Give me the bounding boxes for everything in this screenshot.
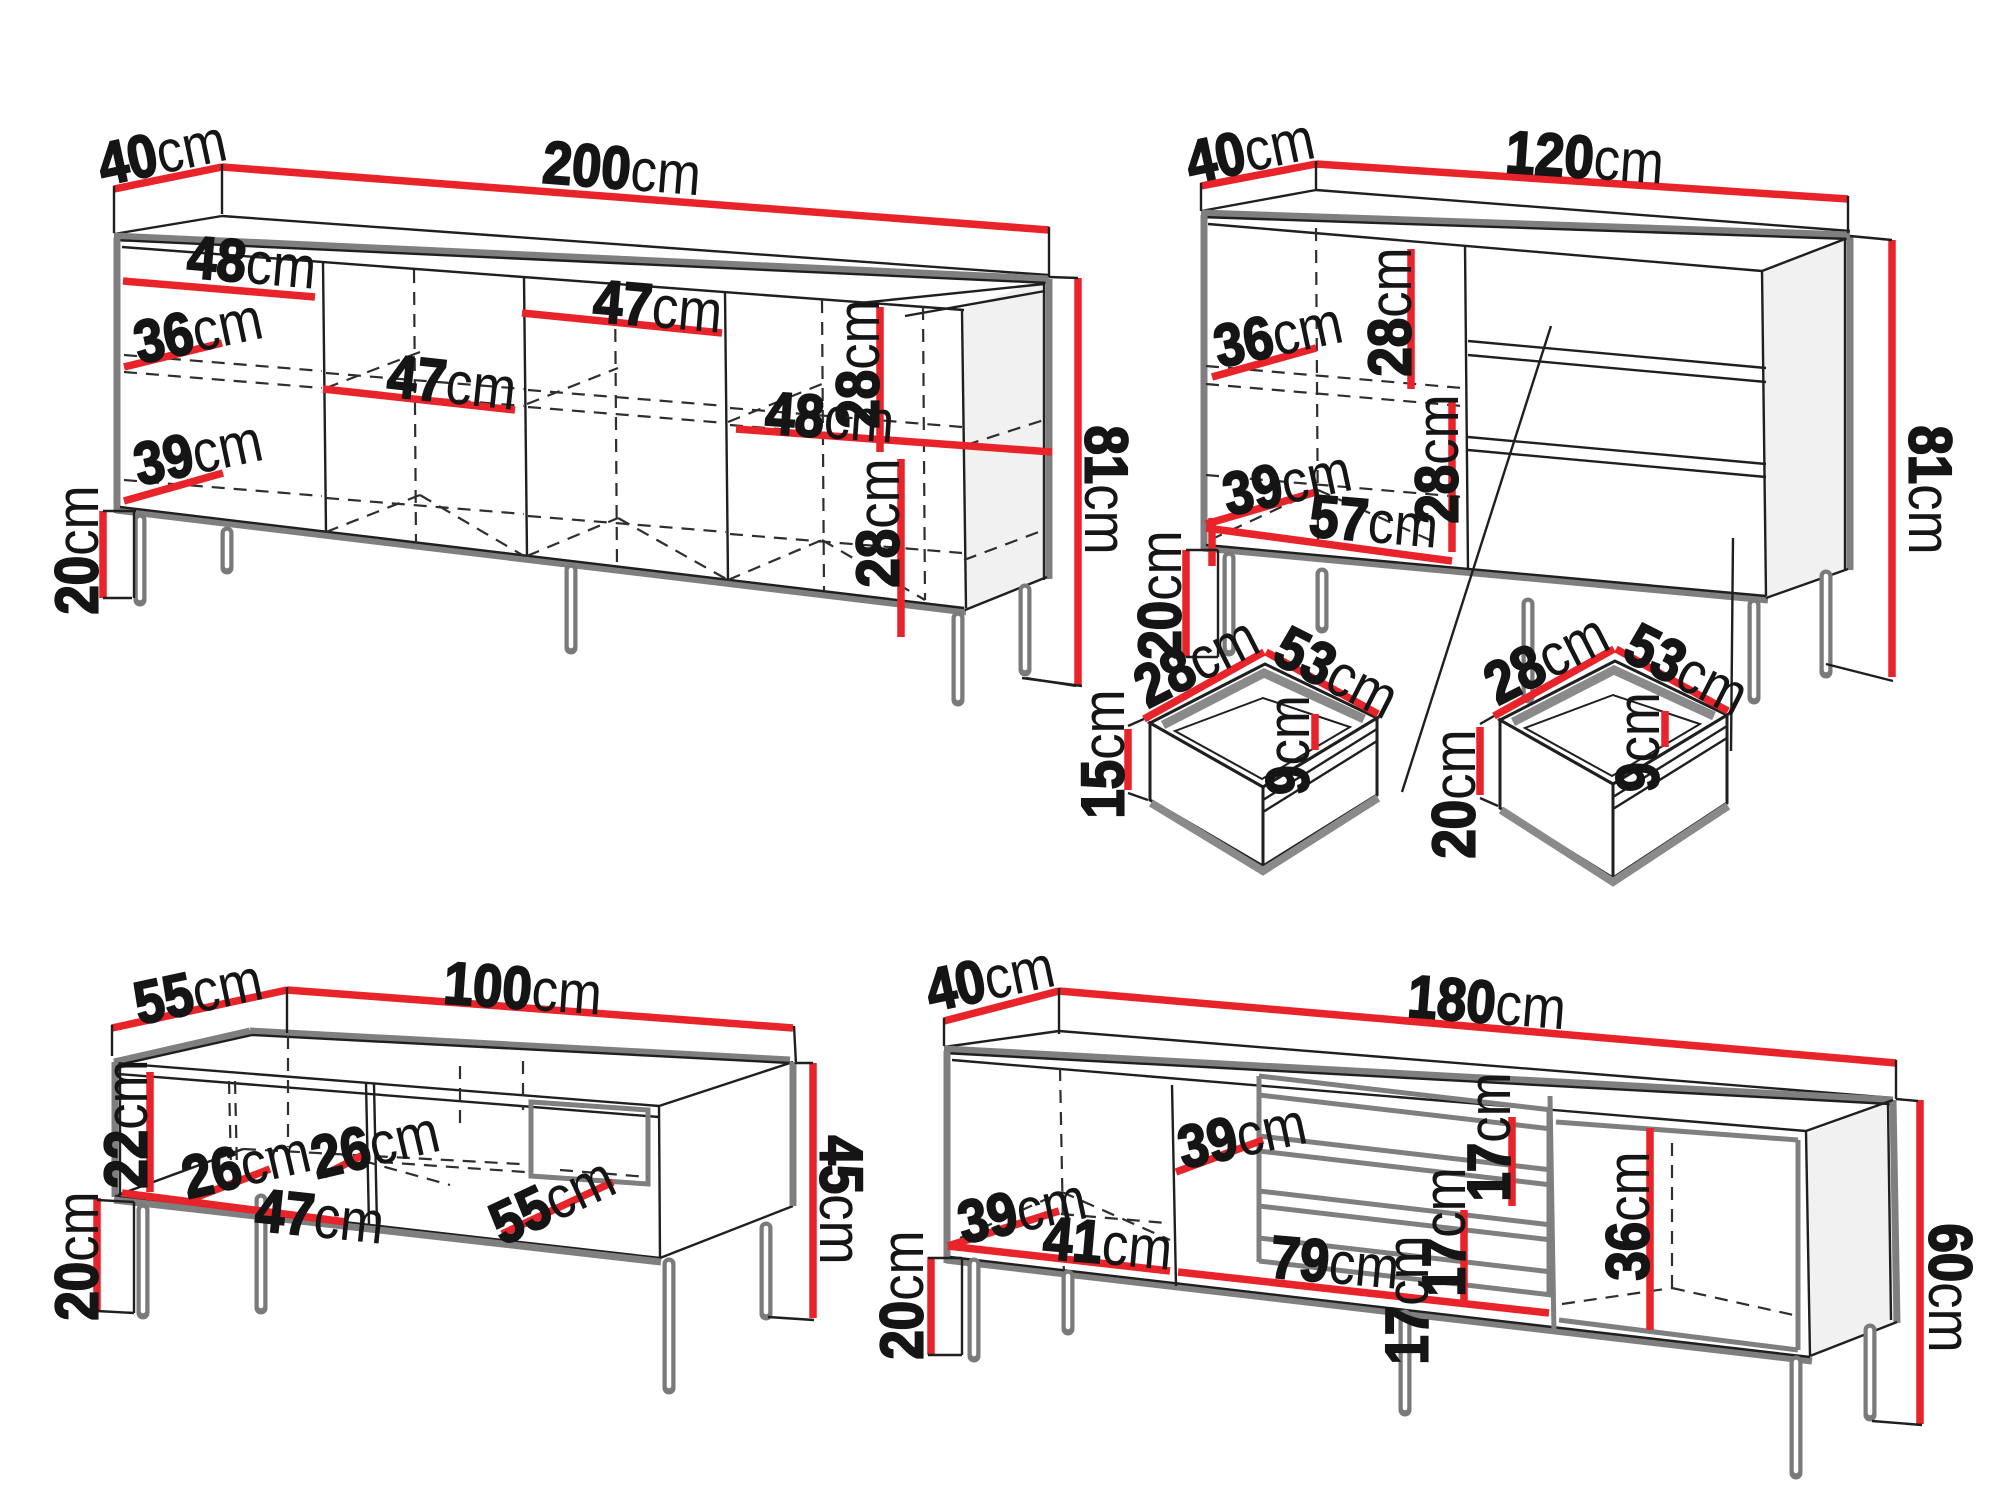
svg-text:17cm: 17cm <box>1374 1235 1441 1364</box>
svg-text:57cm: 57cm <box>1307 482 1441 560</box>
svg-text:28cm: 28cm <box>845 458 912 587</box>
svg-text:45cm: 45cm <box>808 1135 875 1264</box>
svg-text:47cm: 47cm <box>384 342 519 422</box>
svg-text:120cm: 120cm <box>1504 118 1667 196</box>
svg-text:20cm: 20cm <box>869 1230 936 1359</box>
svg-text:28cm: 28cm <box>825 299 892 428</box>
svg-text:180cm: 180cm <box>1405 962 1568 1041</box>
svg-text:60cm: 60cm <box>1917 1223 1984 1352</box>
svg-text:41cm: 41cm <box>1041 1204 1175 1282</box>
svg-text:22cm: 22cm <box>93 1059 160 1188</box>
svg-text:9cm: 9cm <box>1255 695 1322 795</box>
svg-text:200cm: 200cm <box>540 128 703 207</box>
svg-text:47cm: 47cm <box>591 267 725 345</box>
svg-text:20cm: 20cm <box>44 1191 111 1320</box>
svg-text:47cm: 47cm <box>252 1176 387 1256</box>
svg-text:81cm: 81cm <box>1897 425 1964 554</box>
svg-text:36cm: 36cm <box>1595 1151 1662 1280</box>
svg-text:15cm: 15cm <box>1070 689 1137 818</box>
svg-text:9cm: 9cm <box>1605 692 1672 792</box>
svg-text:100cm: 100cm <box>442 949 605 1027</box>
svg-text:28cm: 28cm <box>1357 247 1424 376</box>
svg-text:20cm: 20cm <box>1421 729 1488 858</box>
svg-text:20cm: 20cm <box>44 485 111 614</box>
